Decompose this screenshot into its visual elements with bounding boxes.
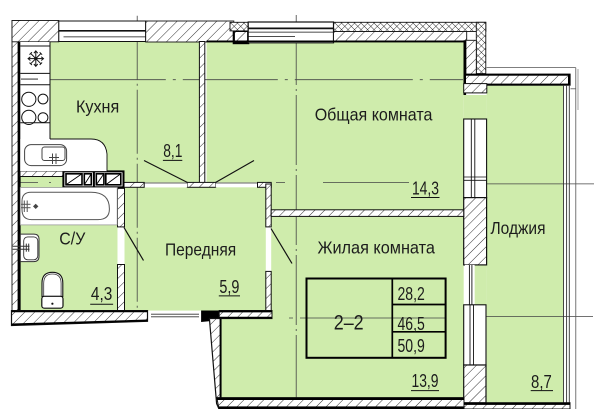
svg-text:4,3: 4,3 bbox=[91, 283, 112, 304]
svg-text:5,9: 5,9 bbox=[219, 276, 239, 297]
svg-text:14,3: 14,3 bbox=[412, 178, 439, 199]
svg-text:Передняя: Передняя bbox=[165, 239, 236, 259]
svg-text:28,2: 28,2 bbox=[398, 283, 425, 304]
svg-text:46,5: 46,5 bbox=[398, 313, 425, 334]
svg-text:8,1: 8,1 bbox=[163, 140, 182, 161]
svg-text:8,7: 8,7 bbox=[531, 371, 552, 392]
svg-text:13,9: 13,9 bbox=[412, 370, 439, 391]
svg-text:50,9: 50,9 bbox=[398, 335, 425, 356]
svg-text:Общая комната: Общая комната bbox=[315, 105, 433, 125]
svg-text:Жилая комната: Жилая комната bbox=[317, 237, 435, 257]
svg-text:С/У: С/У bbox=[59, 229, 86, 249]
svg-text:Кухня: Кухня bbox=[76, 96, 119, 116]
svg-text:Лоджия: Лоджия bbox=[491, 218, 546, 238]
svg-text:2–2: 2–2 bbox=[334, 310, 364, 334]
